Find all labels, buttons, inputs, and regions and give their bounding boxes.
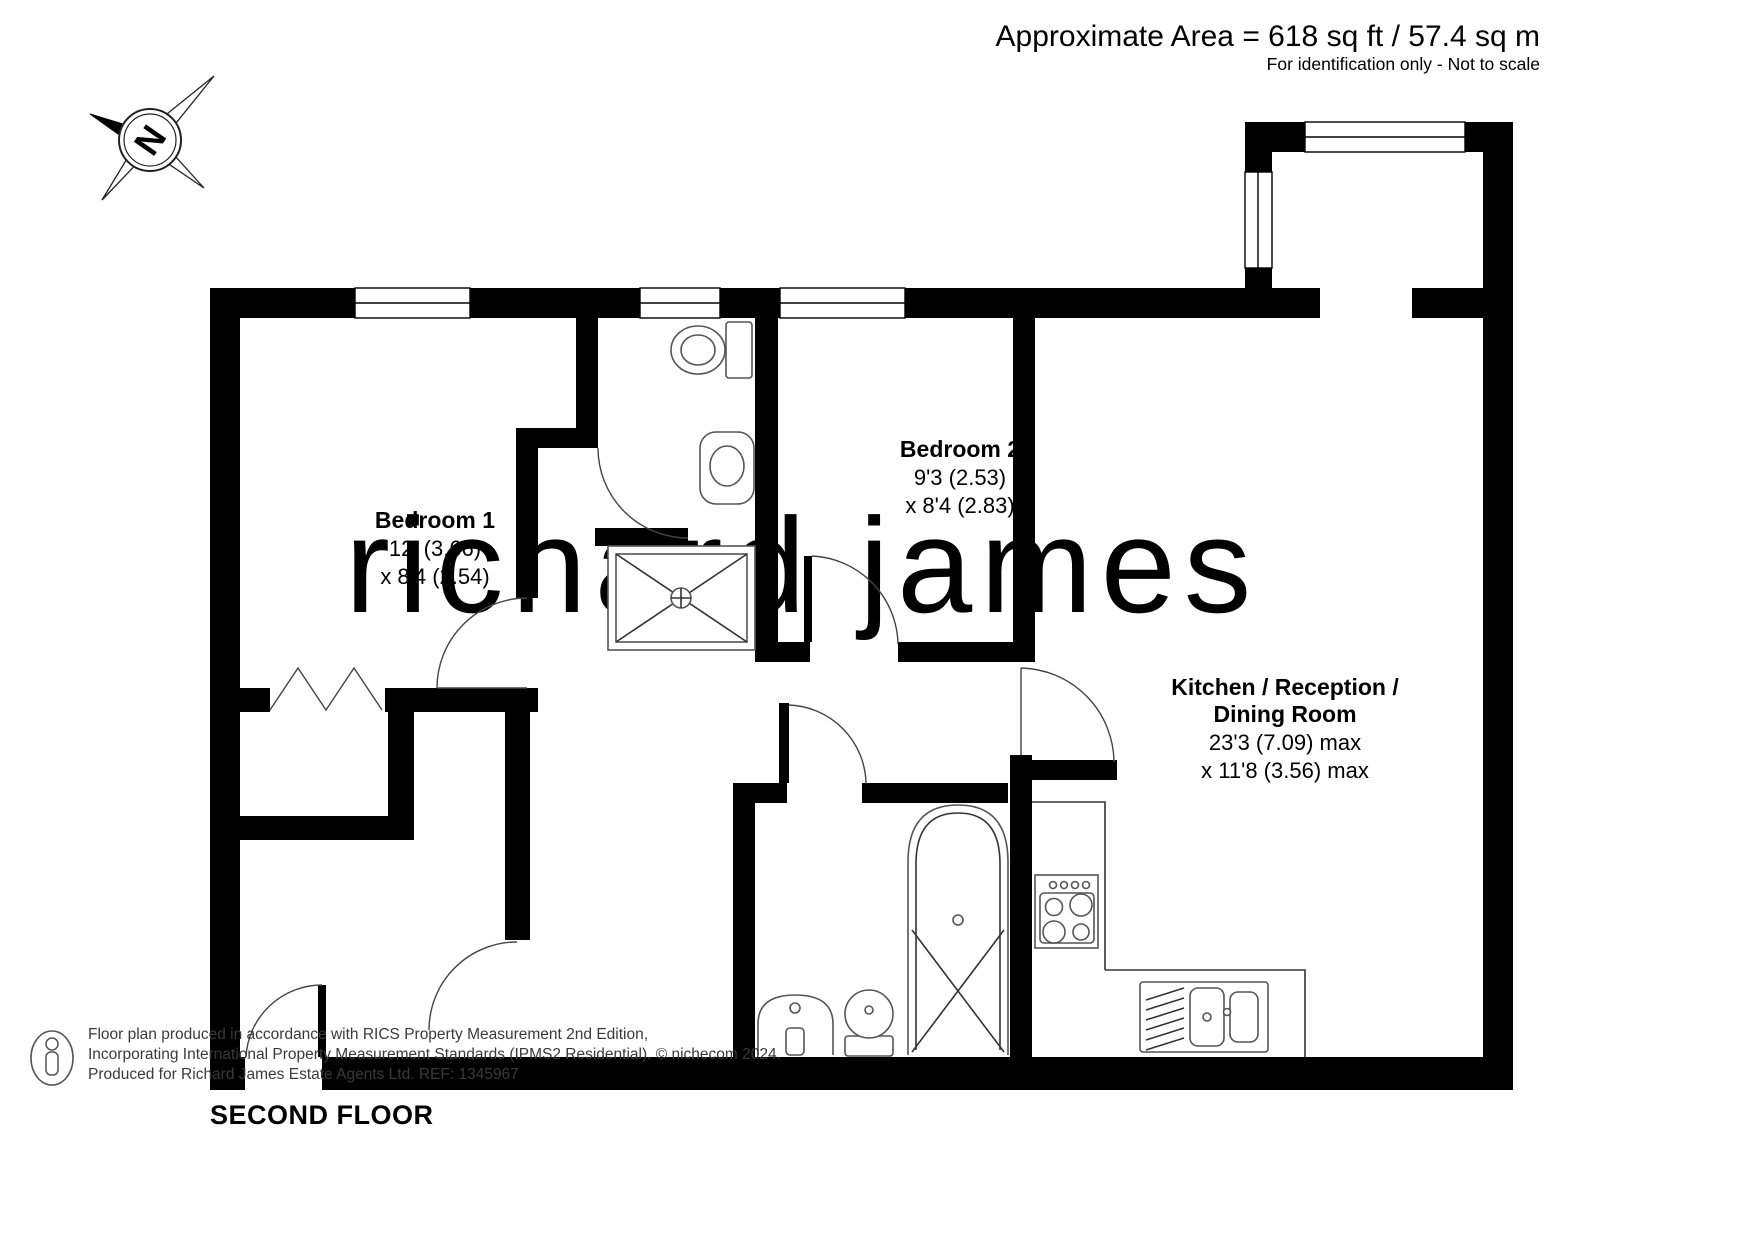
- bath-icon: [908, 805, 1008, 1055]
- footer-line2: Incorporating International Property Mea…: [88, 1046, 781, 1063]
- compass-rose-icon: N: [90, 76, 214, 200]
- window-extension-left: [1245, 172, 1272, 268]
- svg-text:23'3 (7.09) max: 23'3 (7.09) max: [1209, 730, 1361, 755]
- bathroom-door-arc: [789, 705, 866, 784]
- sink-unit-icon: [1140, 982, 1268, 1052]
- svg-text:12' (3.66): 12' (3.66): [389, 536, 481, 561]
- disclaimer-label: For identification only - Not to scale: [1267, 54, 1540, 74]
- floorplan-svg: richard james Approximate Area = 618 sq …: [0, 0, 1755, 1241]
- window-bedroom1: [355, 288, 470, 318]
- bedroom1-label: Bedroom 1 12' (3.66) x 8'4 (2.54): [375, 507, 495, 589]
- kitchen-label: Kitchen / Reception / Dining Room 23'3 (…: [1171, 674, 1399, 783]
- footer-line3: Produced for Richard James Estate Agents…: [88, 1066, 519, 1083]
- bedroom2-label: Bedroom 2 9'3 (2.53) x 8'4 (2.83): [900, 436, 1020, 518]
- svg-text:x 11'8 (3.56) max: x 11'8 (3.56) max: [1201, 758, 1369, 783]
- shower-icon: [608, 546, 755, 650]
- bedroom2-door-leaf: [804, 556, 812, 642]
- toilet2-icon: [845, 990, 893, 1056]
- svg-text:9'3 (2.53): 9'3 (2.53): [914, 465, 1006, 490]
- bathroom-door-leaf: [779, 703, 789, 783]
- basin-icon: [700, 432, 754, 504]
- floorplan-page: richard james Approximate Area = 618 sq …: [0, 0, 1755, 1241]
- toilet-icon: [671, 322, 752, 378]
- svg-text:Bedroom 2: Bedroom 2: [900, 436, 1020, 462]
- svg-text:Kitchen / Reception /: Kitchen / Reception /: [1171, 674, 1399, 700]
- svg-text:Dining Room: Dining Room: [1213, 701, 1356, 727]
- hob-icon: [1035, 875, 1098, 948]
- footer-line1: Floor plan produced in accordance with R…: [88, 1026, 648, 1043]
- hall-door-arc: [429, 942, 517, 1030]
- person-logo-icon: [31, 1031, 73, 1085]
- bifold-closet-door-icon: [270, 668, 382, 710]
- floor-title: SECOND FLOOR: [210, 1100, 434, 1130]
- window-bedroom2: [780, 288, 905, 318]
- kitchen-door-arc: [1021, 668, 1114, 762]
- svg-text:x 8'4 (2.83): x 8'4 (2.83): [905, 493, 1014, 518]
- window-wc: [640, 288, 720, 318]
- window-extension-top: [1305, 122, 1465, 152]
- svg-text:x 8'4 (2.54): x 8'4 (2.54): [380, 564, 489, 589]
- approximate-area-label: Approximate Area = 618 sq ft / 57.4 sq m: [996, 20, 1540, 53]
- svg-text:Bedroom 1: Bedroom 1: [375, 507, 495, 533]
